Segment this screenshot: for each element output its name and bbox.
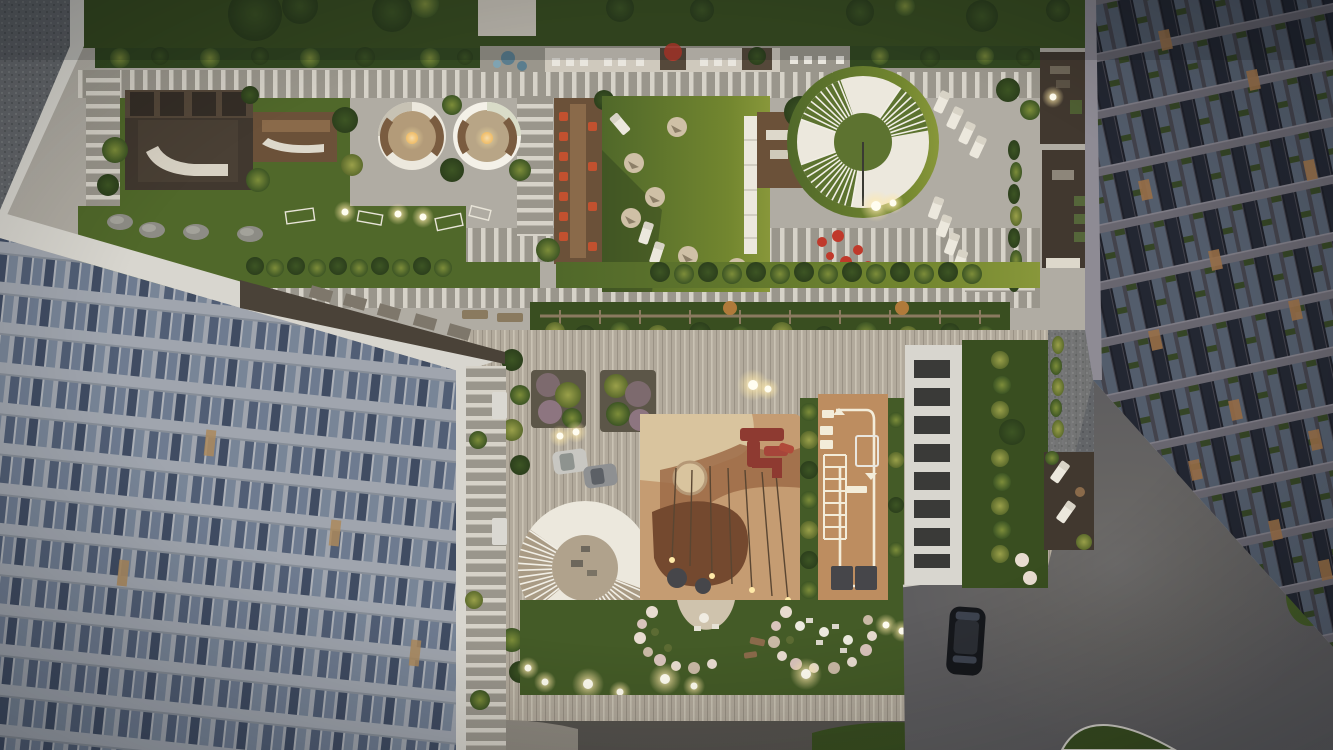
aerial-courtyard-render: [0, 0, 1333, 750]
vignette: [0, 0, 1333, 750]
top-darkening: [0, 0, 1333, 60]
render-canvas: [0, 0, 1333, 750]
